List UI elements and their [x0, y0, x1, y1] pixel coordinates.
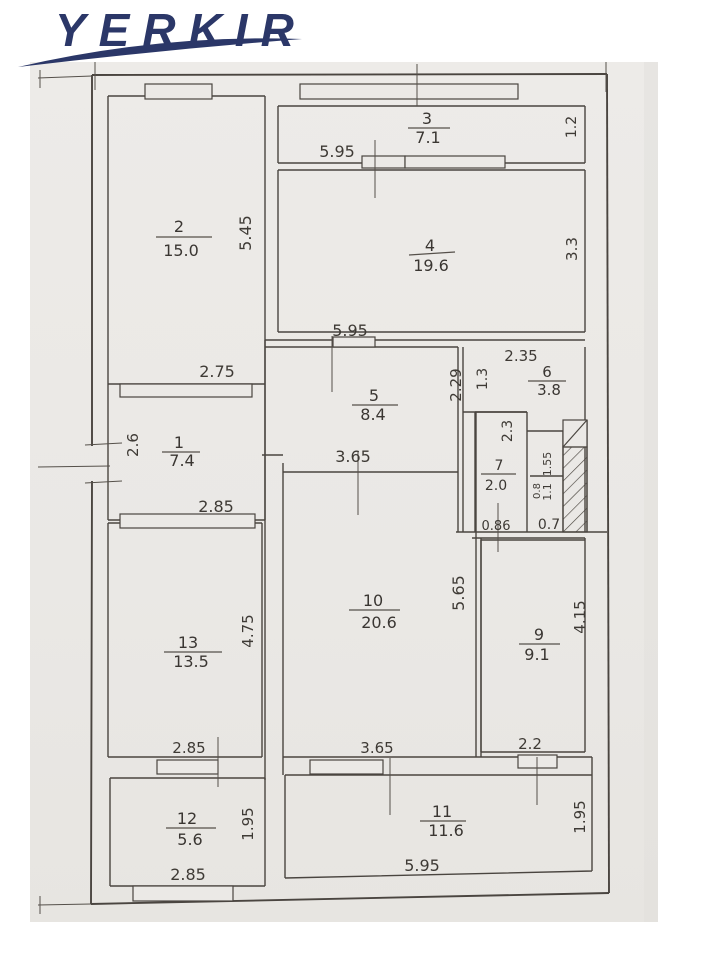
dim-3-65-bottom: 3.65 — [360, 739, 393, 757]
logo-wordmark: YERKIR — [55, 4, 307, 56]
dim-2-3: 2.3 — [500, 420, 516, 442]
room-1-number: 1 — [174, 433, 184, 452]
dim-3-65-mid: 3.65 — [335, 447, 371, 466]
window — [157, 760, 218, 774]
room-7-number: 7 — [495, 458, 504, 474]
window — [405, 156, 505, 168]
window — [300, 84, 518, 99]
dim-2-85-room13: 2.85 — [172, 739, 205, 757]
room-2-number: 2 — [174, 217, 184, 236]
shaft-hatch — [563, 447, 587, 532]
dim-5-65: 5.65 — [449, 575, 468, 611]
dim-2-35: 2.35 — [504, 347, 537, 365]
room-12-number: 12 — [177, 809, 197, 828]
dim-4-15: 4.15 — [571, 600, 589, 633]
room-5-number: 5 — [369, 386, 379, 405]
dim-2-29: 2.29 — [447, 368, 465, 401]
dim-2-85-room12: 2.85 — [170, 865, 206, 884]
shaft — [563, 420, 587, 532]
dim-5-45: 5.45 — [236, 215, 255, 251]
dim-4-75: 4.75 — [239, 614, 257, 647]
dim-2-75: 2.75 — [199, 362, 235, 381]
room-9-number: 9 — [534, 625, 544, 644]
dim-1-95-left: 1.95 — [239, 807, 257, 840]
window — [120, 384, 252, 397]
dim-1-55: 1.55 — [541, 452, 554, 477]
room-6-area: 3.8 — [537, 381, 561, 399]
floor-plan: YERKIR — [0, 0, 709, 973]
window — [310, 760, 383, 774]
dim-1-2: 1.2 — [564, 116, 580, 138]
dim-3-3: 3.3 — [563, 237, 581, 261]
room-2-area: 15.0 — [163, 241, 199, 260]
room-10-area: 20.6 — [361, 613, 397, 632]
room-4-area: 19.6 — [413, 256, 449, 275]
dim-5-95-top: 5.95 — [319, 142, 355, 161]
room-12-area: 5.6 — [177, 830, 202, 849]
dim-2-2: 2.2 — [518, 735, 542, 753]
window — [133, 886, 233, 901]
logo: YERKIR — [18, 4, 307, 67]
dim-1-1: 1.1 — [541, 483, 554, 501]
room-1-area: 7.4 — [169, 451, 194, 470]
room-7-area: 2.0 — [485, 478, 507, 494]
dim-0-86: 0.86 — [482, 519, 511, 534]
room-3-area: 7.1 — [415, 128, 440, 147]
room-11-number: 11 — [432, 802, 452, 821]
room-3-number: 3 — [422, 109, 432, 128]
page: YERKIR — [0, 0, 709, 973]
dim-5-95-bottom: 5.95 — [404, 856, 440, 875]
room-11-area: 11.6 — [428, 821, 464, 840]
room-13-number: 13 — [178, 633, 198, 652]
room-9-area: 9.1 — [524, 645, 549, 664]
dim-0-7: 0.7 — [538, 517, 560, 533]
window — [145, 84, 212, 99]
window — [120, 514, 255, 528]
room-10-number: 10 — [363, 591, 383, 610]
dim-1-95-right: 1.95 — [571, 800, 589, 833]
window — [362, 156, 405, 168]
dim-2-6: 2.6 — [124, 433, 142, 457]
photo-edge-shade — [644, 62, 658, 922]
dim-5-95-mid: 5.95 — [332, 321, 368, 340]
dim-2-85-room1: 2.85 — [198, 497, 234, 516]
room-4-number: 4 — [425, 236, 435, 255]
room-13-area: 13.5 — [173, 652, 209, 671]
dim-1-3: 1.3 — [475, 368, 491, 390]
room-5-area: 8.4 — [360, 405, 385, 424]
room-6-number: 6 — [542, 363, 552, 381]
